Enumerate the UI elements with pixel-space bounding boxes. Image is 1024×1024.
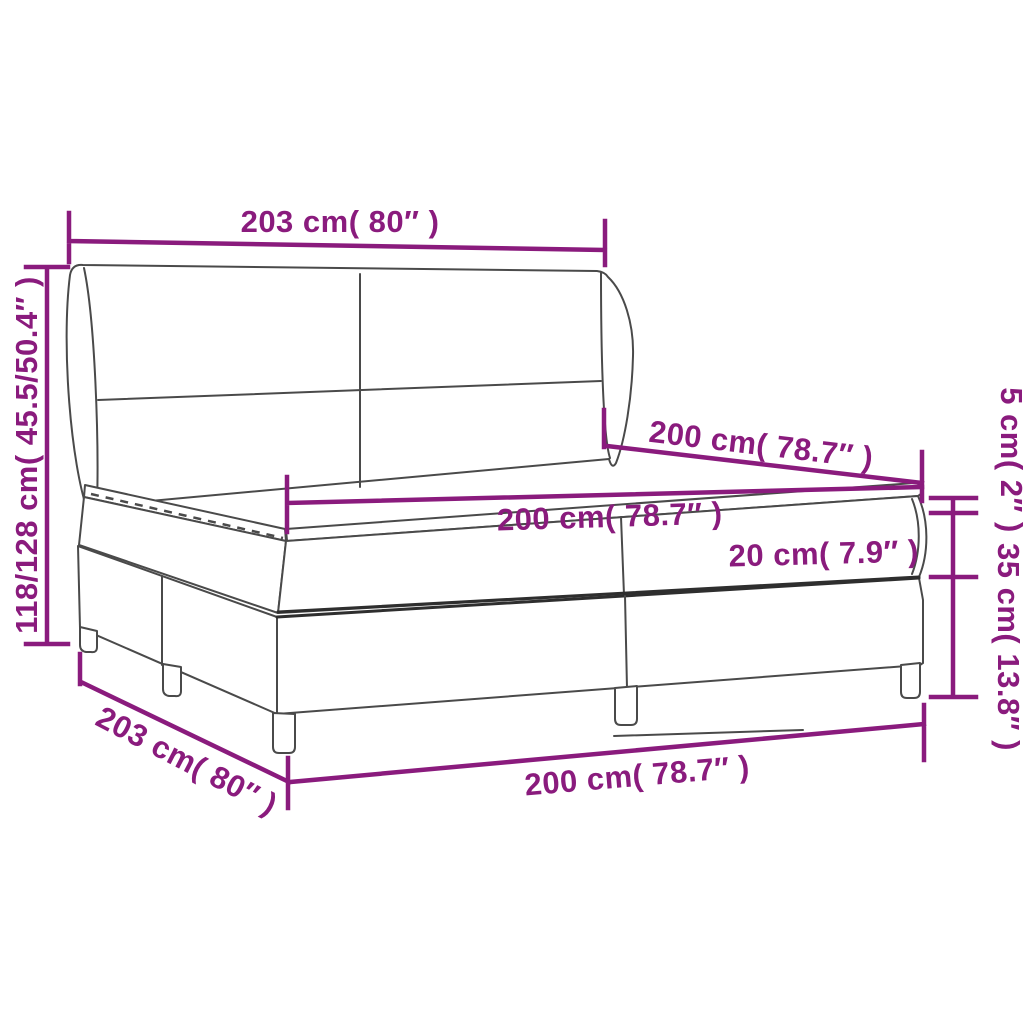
bed-diagram-canvas: 203 cm( 80″ ) 118/128 cm( 45.5/50.4″ ) 2… [0, 0, 1024, 1024]
dim-right-stack: 5 cm( 2″ ) 35 cm( 13.8″ ) [931, 387, 1024, 751]
bed-leg [273, 713, 295, 753]
dim-length-bottom: 200 cm( 78.7″ ) [288, 705, 924, 808]
bed-leg [163, 664, 181, 696]
dim-total-height: 118/128 cm( 45.5/50.4″ ) [9, 267, 68, 644]
dim-headboard-width: 203 cm( 80″ ) [69, 204, 605, 265]
bed-leg [615, 686, 637, 725]
dim-label-base-width: 203 cm( 80″ ) [91, 699, 284, 822]
bed-leg [901, 663, 920, 698]
dim-line [931, 498, 976, 697]
dim-label-topper-height: 5 cm( 2″ ) [994, 387, 1024, 533]
dimension-diagram: 203 cm( 80″ ) 118/128 cm( 45.5/50.4″ ) 2… [0, 0, 1024, 1024]
dim-label-base-height: 35 cm( 13.8″ ) [991, 543, 1024, 751]
headboard-outline [67, 265, 633, 512]
bed-leg [80, 627, 97, 652]
dim-label-headboard-width: 203 cm( 80″ ) [241, 204, 440, 239]
dim-label-length-middle: 200 cm( 78.7″ ) [496, 495, 723, 537]
dim-label-mattress-height: 20 cm( 7.9″ ) [728, 534, 919, 574]
dim-label-total-height: 118/128 cm( 45.5/50.4″ ) [9, 276, 44, 634]
base-underside-line [614, 730, 803, 736]
